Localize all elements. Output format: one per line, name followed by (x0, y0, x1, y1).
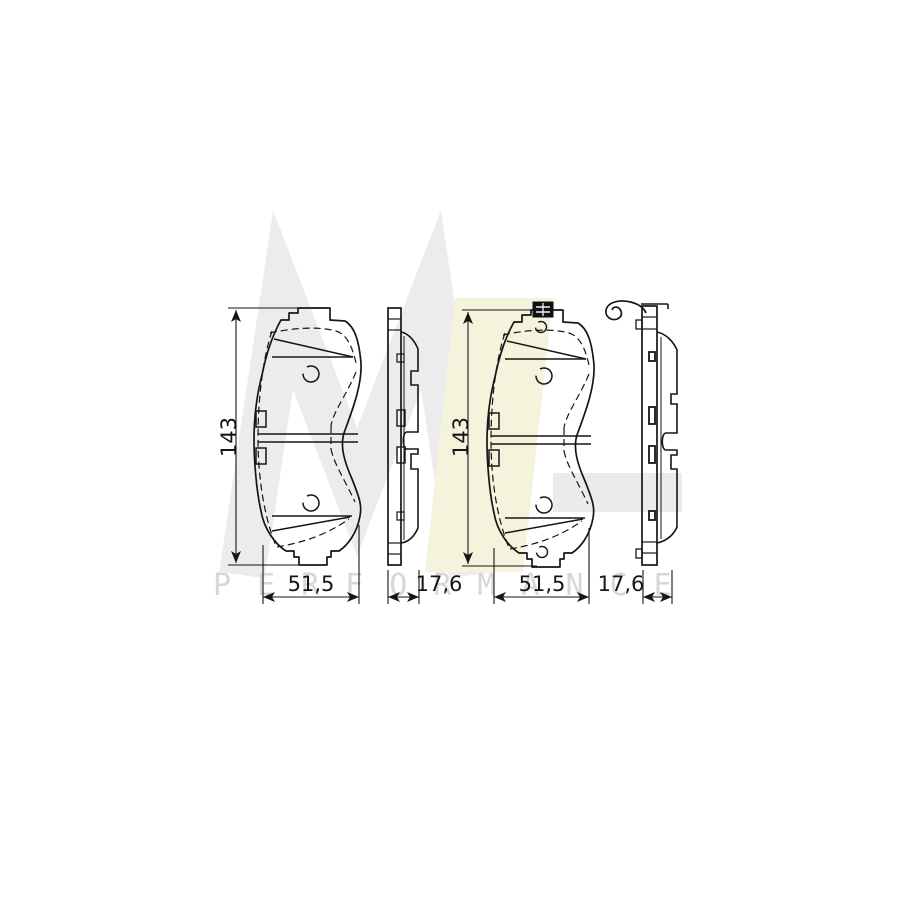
watermark-letter-band (553, 473, 682, 512)
technical-drawing-page: PERFORMANCE (0, 0, 900, 900)
pad-side-view-2 (606, 301, 677, 565)
rivet-hole-bottom (534, 544, 549, 559)
width-label-2: 51,5 (519, 572, 566, 596)
height-label-1: 143 (217, 417, 241, 457)
spring-clip-hook (606, 301, 646, 319)
brake-pad-drawing: PERFORMANCE (0, 0, 900, 900)
thickness-label-2: 17,6 (598, 572, 645, 596)
width-label-1: 51,5 (288, 572, 335, 596)
height-label-2: 143 (449, 417, 473, 457)
thickness-label-1: 17,6 (416, 572, 463, 596)
